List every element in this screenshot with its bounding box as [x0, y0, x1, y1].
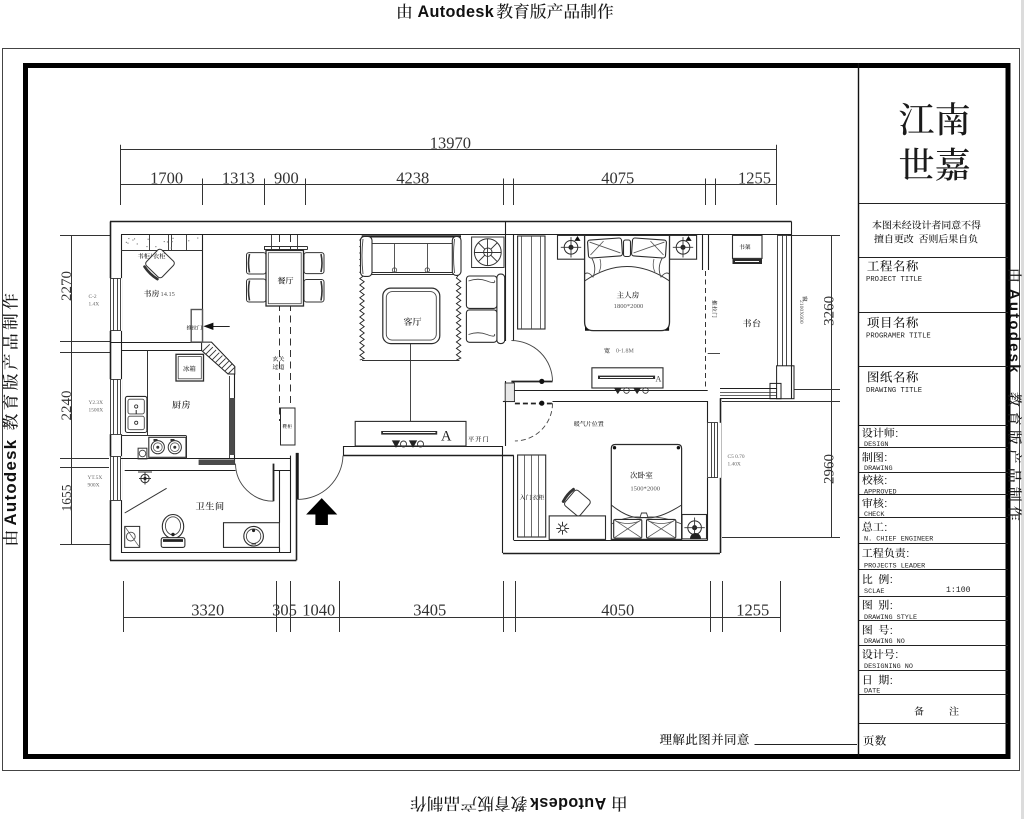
svg-text:1313: 1313: [222, 168, 255, 187]
svg-text:DRAWING NO: DRAWING NO: [864, 638, 905, 646]
svg-text:0-1.8M: 0-1.8M: [616, 349, 634, 355]
svg-text:1040: 1040: [302, 600, 335, 619]
svg-text:Autodesk: Autodesk: [529, 794, 606, 812]
svg-text:PROJECTS LEADER: PROJECTS LEADER: [864, 562, 925, 570]
svg-text:Autodesk: Autodesk: [1, 439, 20, 526]
svg-text::: :: [890, 600, 893, 612]
svg-text:4238: 4238: [396, 168, 429, 187]
svg-text:SCLAE: SCLAE: [864, 588, 884, 596]
svg-text:3320: 3320: [191, 600, 224, 619]
svg-text:N. CHIEF ENGINEER: N. CHIEF ENGINEER: [864, 536, 933, 544]
svg-text:1.4X: 1.4X: [89, 302, 100, 308]
svg-text:2960: 2960: [822, 454, 838, 484]
svg-text:3405: 3405: [413, 600, 446, 619]
svg-text:/: /: [150, 253, 152, 260]
svg-text:YT.5X: YT.5X: [88, 475, 103, 481]
svg-text:C-2: C-2: [89, 294, 97, 300]
svg-text:14.15: 14.15: [161, 291, 175, 298]
svg-text:Y2.3X: Y2.3X: [89, 400, 104, 406]
svg-text:3260: 3260: [822, 296, 838, 326]
svg-text::: :: [890, 675, 893, 687]
svg-text:CHECK: CHECK: [864, 511, 885, 519]
svg-text:APPROVED: APPROVED: [864, 488, 897, 496]
svg-text:1255: 1255: [738, 168, 771, 187]
svg-text::: :: [895, 649, 898, 661]
svg-text:DESIGNING NO: DESIGNING NO: [864, 663, 913, 671]
svg-text::: :: [884, 498, 887, 510]
svg-text:2270: 2270: [59, 271, 75, 301]
svg-text::: :: [884, 475, 887, 487]
svg-text:2100X600: 2100X600: [798, 300, 804, 324]
svg-text:1255: 1255: [736, 600, 769, 619]
svg-text:900X: 900X: [88, 483, 100, 489]
svg-text:A: A: [441, 428, 452, 444]
svg-text:1800*2000: 1800*2000: [614, 303, 644, 310]
svg-text:4050: 4050: [601, 600, 634, 619]
svg-text:PROJECT TITLE: PROJECT TITLE: [866, 276, 922, 284]
svg-text:1500*2000: 1500*2000: [630, 486, 660, 493]
svg-text::: :: [890, 574, 893, 586]
svg-text:305: 305: [272, 600, 297, 619]
svg-text::: :: [884, 522, 887, 534]
svg-text:1.40X: 1.40X: [728, 462, 741, 468]
svg-text:DRAWING: DRAWING: [864, 465, 893, 473]
svg-text:C5 0.70: C5 0.70: [728, 454, 745, 460]
svg-text:1500X: 1500X: [89, 408, 104, 414]
svg-text:2240: 2240: [59, 391, 75, 421]
svg-text:1655: 1655: [59, 484, 74, 511]
svg-text:13970: 13970: [430, 134, 471, 153]
svg-text:A: A: [656, 375, 662, 384]
svg-text:1700: 1700: [150, 168, 183, 187]
svg-text::: :: [895, 428, 898, 440]
svg-text:Autodesk: Autodesk: [418, 3, 495, 21]
svg-text:900: 900: [274, 168, 299, 187]
svg-text:4075: 4075: [601, 168, 634, 187]
svg-text::: :: [906, 548, 909, 560]
svg-text:DATE: DATE: [864, 688, 880, 696]
svg-text:DRAWING STYLE: DRAWING STYLE: [864, 614, 917, 622]
svg-text::: :: [890, 625, 893, 637]
svg-text:PROGRAMER TITLE: PROGRAMER TITLE: [866, 333, 931, 341]
svg-text::: :: [884, 452, 887, 464]
svg-text:DESIGN: DESIGN: [864, 441, 888, 449]
svg-text:DRAWING TITLE: DRAWING TITLE: [866, 387, 922, 395]
svg-text:Autodesk: Autodesk: [1006, 289, 1023, 375]
svg-text:1:100: 1:100: [946, 586, 971, 595]
